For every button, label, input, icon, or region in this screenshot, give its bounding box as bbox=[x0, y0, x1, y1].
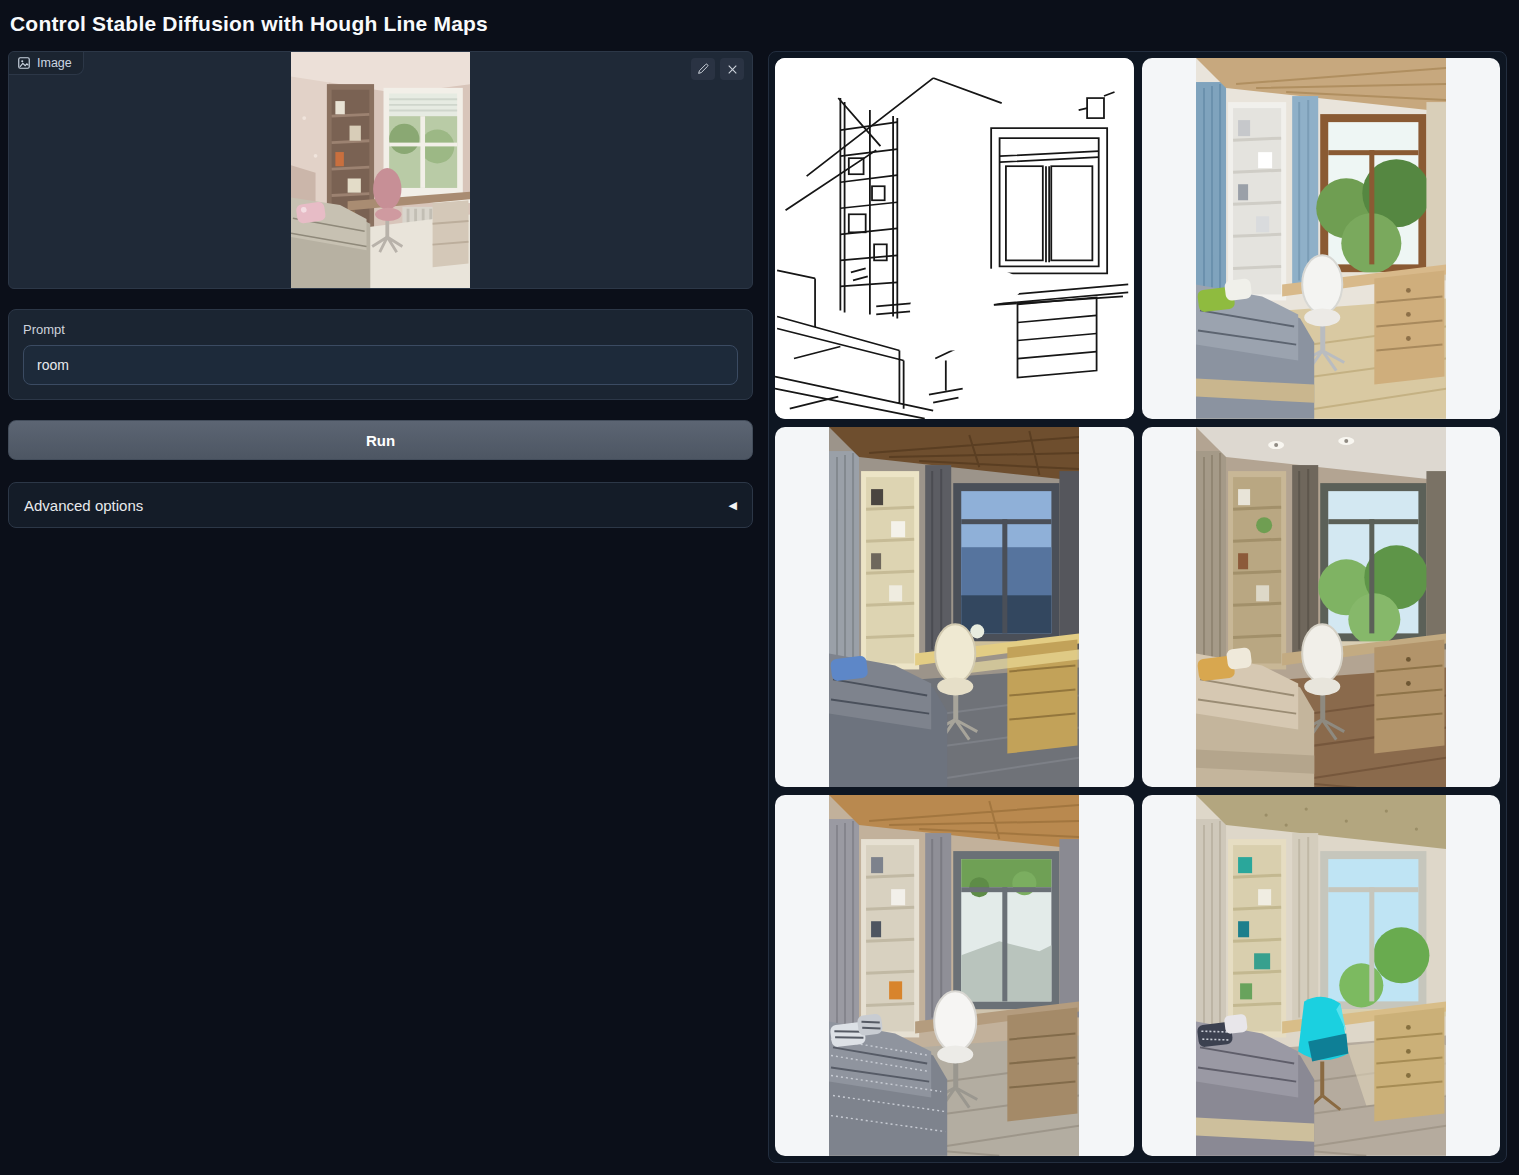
input-column: Image bbox=[8, 51, 753, 528]
pencil-icon bbox=[696, 62, 710, 76]
gallery-item-5[interactable] bbox=[775, 795, 1134, 1156]
curtain-left-edge bbox=[829, 451, 859, 687]
gallery-item-6[interactable] bbox=[1142, 795, 1501, 1156]
advanced-options-label: Advanced options bbox=[24, 497, 143, 514]
results-gallery bbox=[768, 51, 1507, 1163]
uploaded-image[interactable] bbox=[9, 52, 752, 288]
image-label-badge: Image bbox=[9, 52, 84, 75]
prompt-label: Prompt bbox=[23, 322, 738, 337]
run-button[interactable]: Run bbox=[8, 420, 753, 460]
bookshelf bbox=[861, 471, 919, 669]
gallery-item-1[interactable] bbox=[775, 58, 1134, 419]
curtain-window-right bbox=[1059, 839, 1079, 1017]
generated-room-image-4 bbox=[829, 795, 1079, 1156]
curtain-window-right bbox=[1426, 471, 1446, 649]
curtain-window-left bbox=[1292, 833, 1318, 1025]
input-image-panel: Image bbox=[8, 51, 753, 289]
curtain-window-right bbox=[1059, 471, 1079, 649]
advanced-options-accordion[interactable]: Advanced options ◀ bbox=[8, 482, 753, 528]
erased-area-2 bbox=[950, 268, 1022, 304]
curtain-left-edge bbox=[1196, 82, 1226, 318]
generated-room-image-3 bbox=[1196, 427, 1446, 788]
image-label: Image bbox=[37, 56, 72, 70]
gallery-item-3[interactable] bbox=[775, 427, 1134, 788]
clear-image-button[interactable] bbox=[720, 58, 744, 80]
gallery-item-4[interactable] bbox=[1142, 427, 1501, 788]
bookshelf bbox=[1228, 839, 1286, 1037]
gallery-item-2[interactable] bbox=[1142, 58, 1501, 419]
pillow bbox=[295, 201, 326, 224]
page-title: Control Stable Diffusion with Hough Line… bbox=[10, 12, 1507, 36]
edit-image-button[interactable] bbox=[691, 58, 715, 80]
close-icon bbox=[726, 63, 739, 76]
page: Control Stable Diffusion with Hough Line… bbox=[0, 0, 1519, 1171]
curtain-window-right bbox=[1426, 102, 1446, 280]
pillow bbox=[830, 655, 868, 681]
generated-room-image-1 bbox=[1196, 58, 1446, 419]
generated-room-image-5 bbox=[1196, 795, 1446, 1156]
collapse-arrow-icon: ◀ bbox=[729, 499, 737, 512]
image-icon bbox=[17, 56, 31, 70]
input-room-photo bbox=[291, 52, 470, 288]
prompt-panel: Prompt bbox=[8, 309, 753, 400]
bookshelf bbox=[861, 839, 919, 1037]
bookshelf bbox=[1228, 102, 1286, 300]
bookshelf bbox=[1228, 471, 1286, 669]
hough-line-map-image bbox=[775, 58, 1134, 419]
curtain-left-edge bbox=[1196, 819, 1226, 1055]
generated-room-image-2 bbox=[829, 427, 1079, 788]
curtain-left-edge bbox=[829, 819, 859, 1055]
curtain-left-edge bbox=[1196, 451, 1226, 687]
prompt-input[interactable] bbox=[23, 345, 738, 385]
